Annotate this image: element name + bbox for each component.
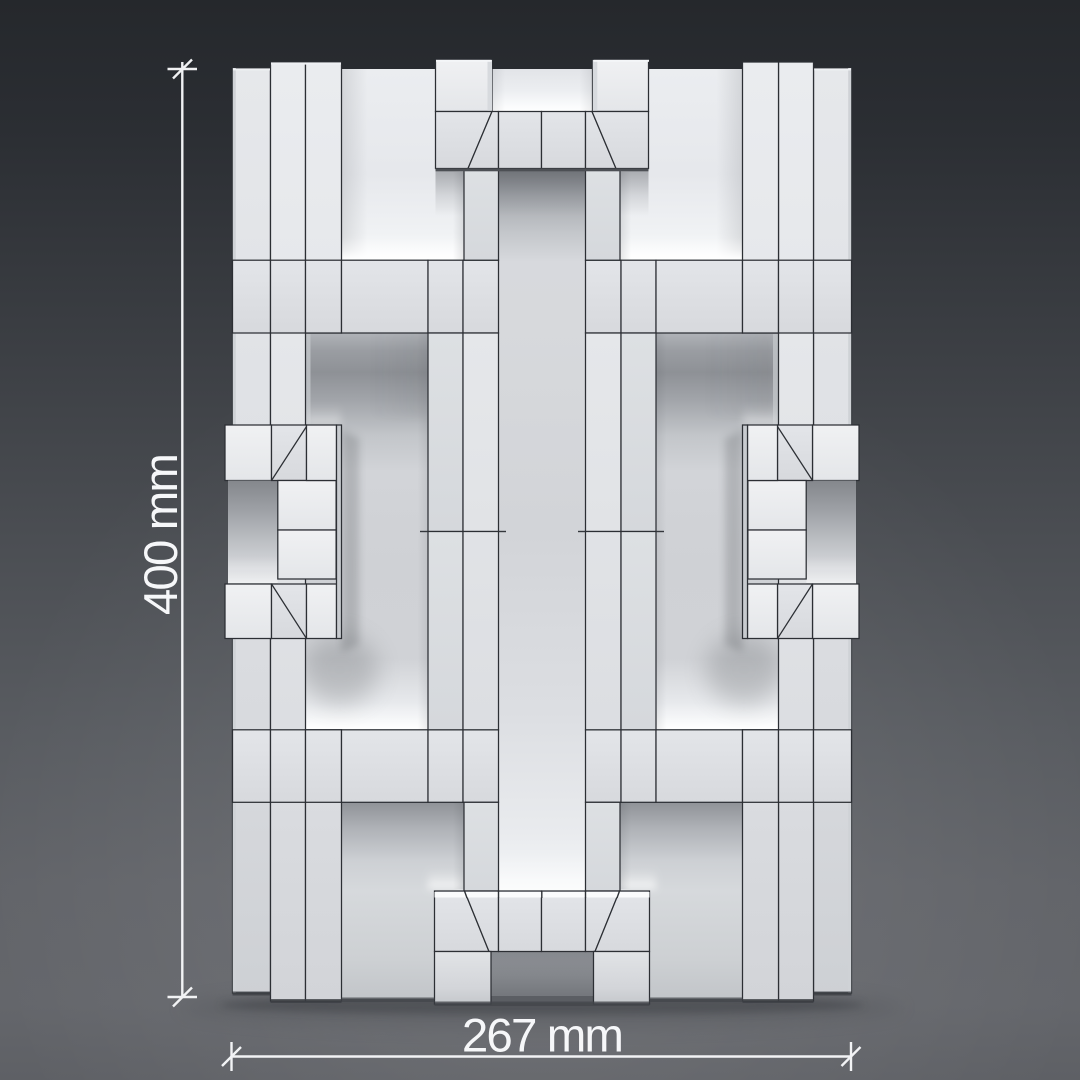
svg-text:400 mm: 400 mm bbox=[135, 455, 188, 615]
svg-text:267 mm: 267 mm bbox=[462, 1010, 622, 1063]
